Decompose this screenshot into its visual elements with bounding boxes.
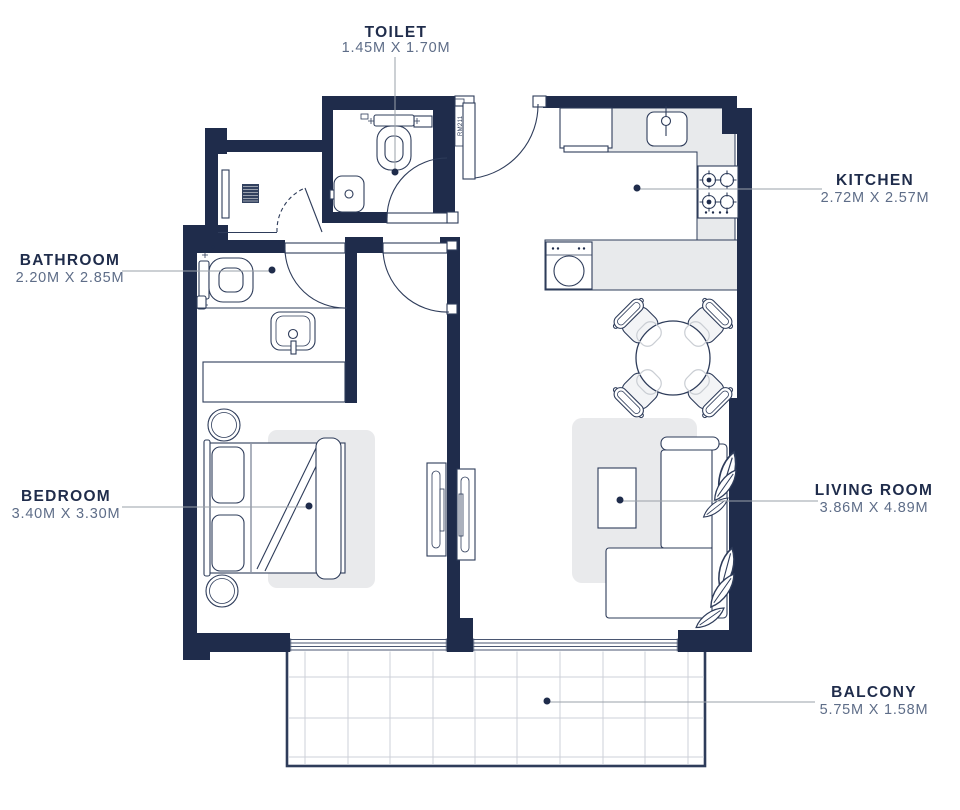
room-label-living-room: LIVING ROOM: [815, 482, 934, 499]
bedroom-door-leaf: [383, 243, 447, 253]
blanket-edge: [316, 438, 341, 579]
tv-unit-icon: [457, 469, 475, 560]
sofa-icon: [661, 450, 714, 548]
shower-glass-icon: [222, 170, 229, 218]
toilet-room-fixtures: [330, 114, 432, 212]
door-swing-icon: [383, 250, 449, 312]
floor-plan-drawing: RM211: [0, 0, 960, 810]
door-swing-icon: [277, 188, 305, 232]
sofa-armrest: [661, 437, 719, 450]
room-dims-toilet: 1.45M X 1.70M: [342, 40, 451, 56]
toilet-icon: [199, 261, 209, 299]
floor-plan: RM211: [0, 0, 960, 810]
toilet-icon: [374, 115, 414, 126]
nightstand-icon: [206, 575, 238, 607]
room-dims-living-room: 3.86M X 4.89M: [820, 500, 929, 516]
tv-unit-icon: [427, 463, 446, 556]
bedroom-furniture: [203, 362, 345, 607]
toilet-paper-icon: [361, 114, 368, 119]
door-swing-icon: [475, 104, 538, 178]
valve-icon: [202, 244, 210, 250]
faucet-icon: [291, 341, 296, 354]
room-dims-balcony: 5.75M X 1.58M: [820, 702, 929, 718]
door-jamb: [447, 212, 458, 223]
coffee-table-icon: [598, 468, 636, 528]
wardrobe-icon: [203, 362, 345, 402]
room-dims-bathroom: 2.20M X 2.85M: [16, 270, 125, 286]
room-dims-bedroom: 3.40M X 3.30M: [12, 506, 121, 522]
pillow-icon: [212, 447, 244, 503]
room-label-bathroom: BATHROOM: [20, 252, 121, 269]
nightstand-icon: [208, 409, 240, 441]
room-label-toilet: TOILET: [365, 24, 428, 41]
entrance-door-leaf: [463, 103, 475, 179]
stove-icon: [698, 166, 738, 218]
shower-drain-icon: [242, 184, 259, 203]
dining-table-icon: [636, 321, 710, 395]
toilet-paper-icon: [197, 296, 206, 309]
bathroom-door-leaf: [285, 243, 345, 253]
sofa-chaise: [606, 548, 714, 618]
fridge-icon: [560, 108, 612, 148]
sliding-door-icon: [290, 639, 678, 652]
pillow-icon: [212, 515, 244, 571]
door-jamb: [447, 241, 457, 250]
shower-door-leaf: [305, 188, 322, 232]
room-label-kitchen: KITCHEN: [836, 172, 914, 189]
door-jamb: [533, 96, 546, 107]
room-label-balcony: BALCONY: [831, 684, 917, 701]
room-dims-kitchen: 2.72M X 2.57M: [821, 190, 930, 206]
toilet-door-leaf: [387, 213, 447, 223]
door-swing-icon: [285, 250, 347, 308]
shower-room-fixtures: [222, 170, 259, 218]
balcony-border: [287, 641, 705, 766]
room-label-bedroom: BEDROOM: [21, 488, 111, 505]
bathroom-fixtures: [197, 244, 345, 354]
headboard: [204, 440, 210, 576]
dining-set: [610, 295, 736, 421]
